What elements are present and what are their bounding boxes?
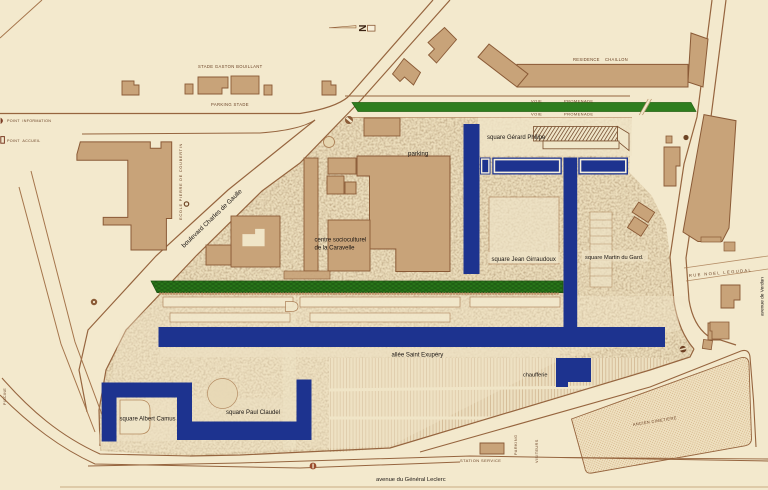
svg-text:square Paul Claudel: square Paul Claudel — [226, 410, 280, 416]
svg-text:PARKING: PARKING — [514, 434, 518, 455]
svg-text:square Albert Camus: square Albert Camus — [120, 417, 176, 423]
svg-text:ECOLE PIERRE DE COUBERTIN: ECOLE PIERRE DE COUBERTIN — [178, 143, 183, 220]
svg-text:allée Saint Exupéry: allée Saint Exupéry — [392, 353, 444, 359]
svg-text:VOIE: VOIE — [531, 112, 542, 117]
svg-text:STADE GASTON BOUILLANT: STADE GASTON BOUILLANT — [198, 64, 263, 69]
svg-text:de la Caravelle: de la Caravelle — [315, 246, 356, 252]
svg-text:chaufferie: chaufferie — [523, 373, 547, 379]
svg-text:centre socioculturel: centre socioculturel — [315, 238, 367, 244]
svg-text:PROMENADE: PROMENADE — [564, 112, 593, 117]
svg-text:POINT INFORMATION: POINT INFORMATION — [7, 119, 51, 123]
svg-text:square Gérard Philipe: square Gérard Philipe — [487, 135, 546, 141]
svg-text:PISCINE: PISCINE — [3, 388, 7, 405]
svg-text:RESIDENCE: RESIDENCE — [573, 57, 600, 62]
svg-text:N: N — [356, 25, 367, 32]
svg-text:STATION SERVICE: STATION SERVICE — [460, 458, 501, 463]
svg-text:PARKING STADE: PARKING STADE — [211, 102, 249, 107]
svg-text:square Martin du Gard.: square Martin du Gard. — [585, 255, 644, 261]
svg-text:avenue du Général Leclerc: avenue du Général Leclerc — [376, 477, 446, 483]
svg-text:parking: parking — [408, 151, 429, 158]
svg-text:VISITEURS: VISITEURS — [535, 439, 539, 463]
svg-text:avenue de Verdun: avenue de Verdun — [760, 277, 766, 316]
svg-text:POINT ACCUEIL: POINT ACCUEIL — [7, 139, 41, 143]
svg-text:CHAILLON: CHAILLON — [605, 57, 628, 62]
svg-text:square Jean Girraudoux: square Jean Girraudoux — [492, 257, 556, 263]
svg-text:VOIE: VOIE — [531, 99, 542, 104]
svg-text:PROMENADE: PROMENADE — [564, 99, 593, 104]
